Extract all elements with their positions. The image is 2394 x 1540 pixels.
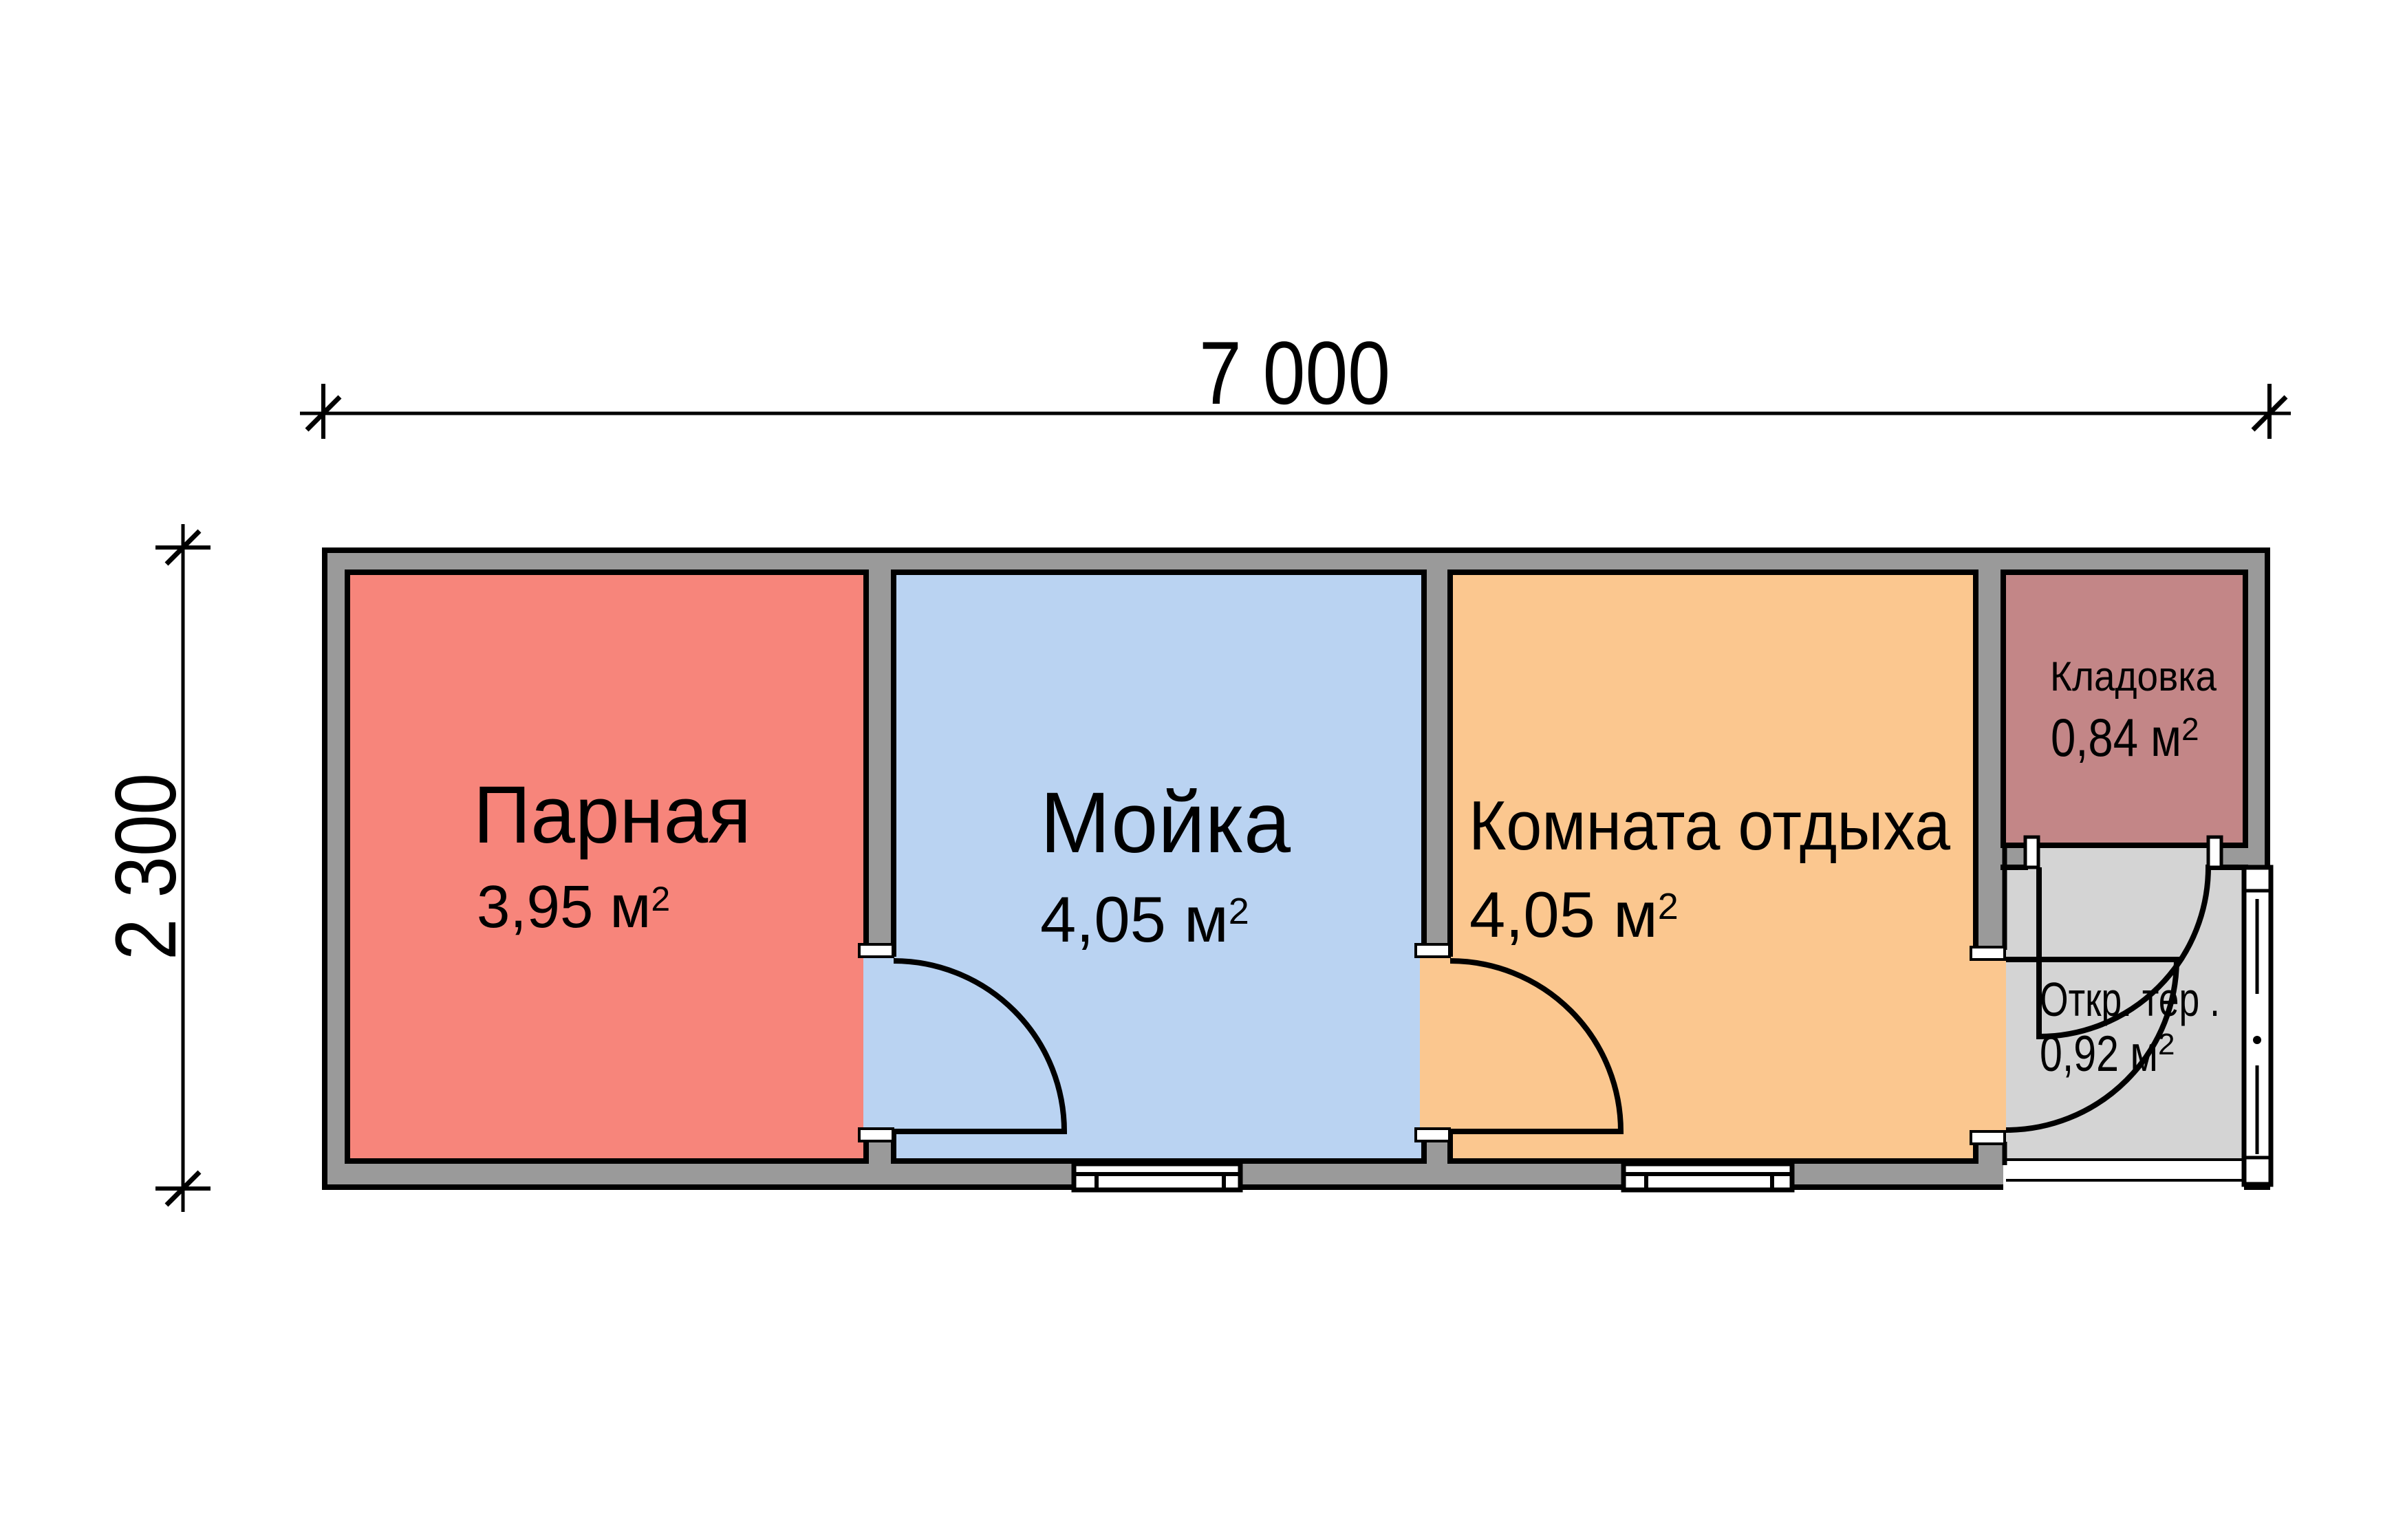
svg-text:3,95 м2: 3,95 м2	[477, 874, 670, 940]
svg-text:2 300: 2 300	[98, 773, 194, 960]
svg-text:Парная: Парная	[473, 770, 751, 860]
svg-text:7 000: 7 000	[1199, 323, 1390, 423]
svg-text:0,92 м2: 0,92 м2	[2040, 1026, 2175, 1082]
svg-text:4,05 м2: 4,05 м2	[1040, 883, 1249, 955]
svg-text:Мойка: Мойка	[1040, 775, 1291, 871]
svg-text:0,84 м2: 0,84 м2	[2051, 707, 2199, 768]
svg-text:Кладовка: Кладовка	[2050, 653, 2217, 699]
svg-text:4,05 м2: 4,05 м2	[1469, 878, 1679, 951]
svg-text:Комната отдыха: Комната отдыха	[1469, 788, 1951, 865]
svg-text:Откр. тер .: Откр. тер .	[2040, 973, 2220, 1026]
